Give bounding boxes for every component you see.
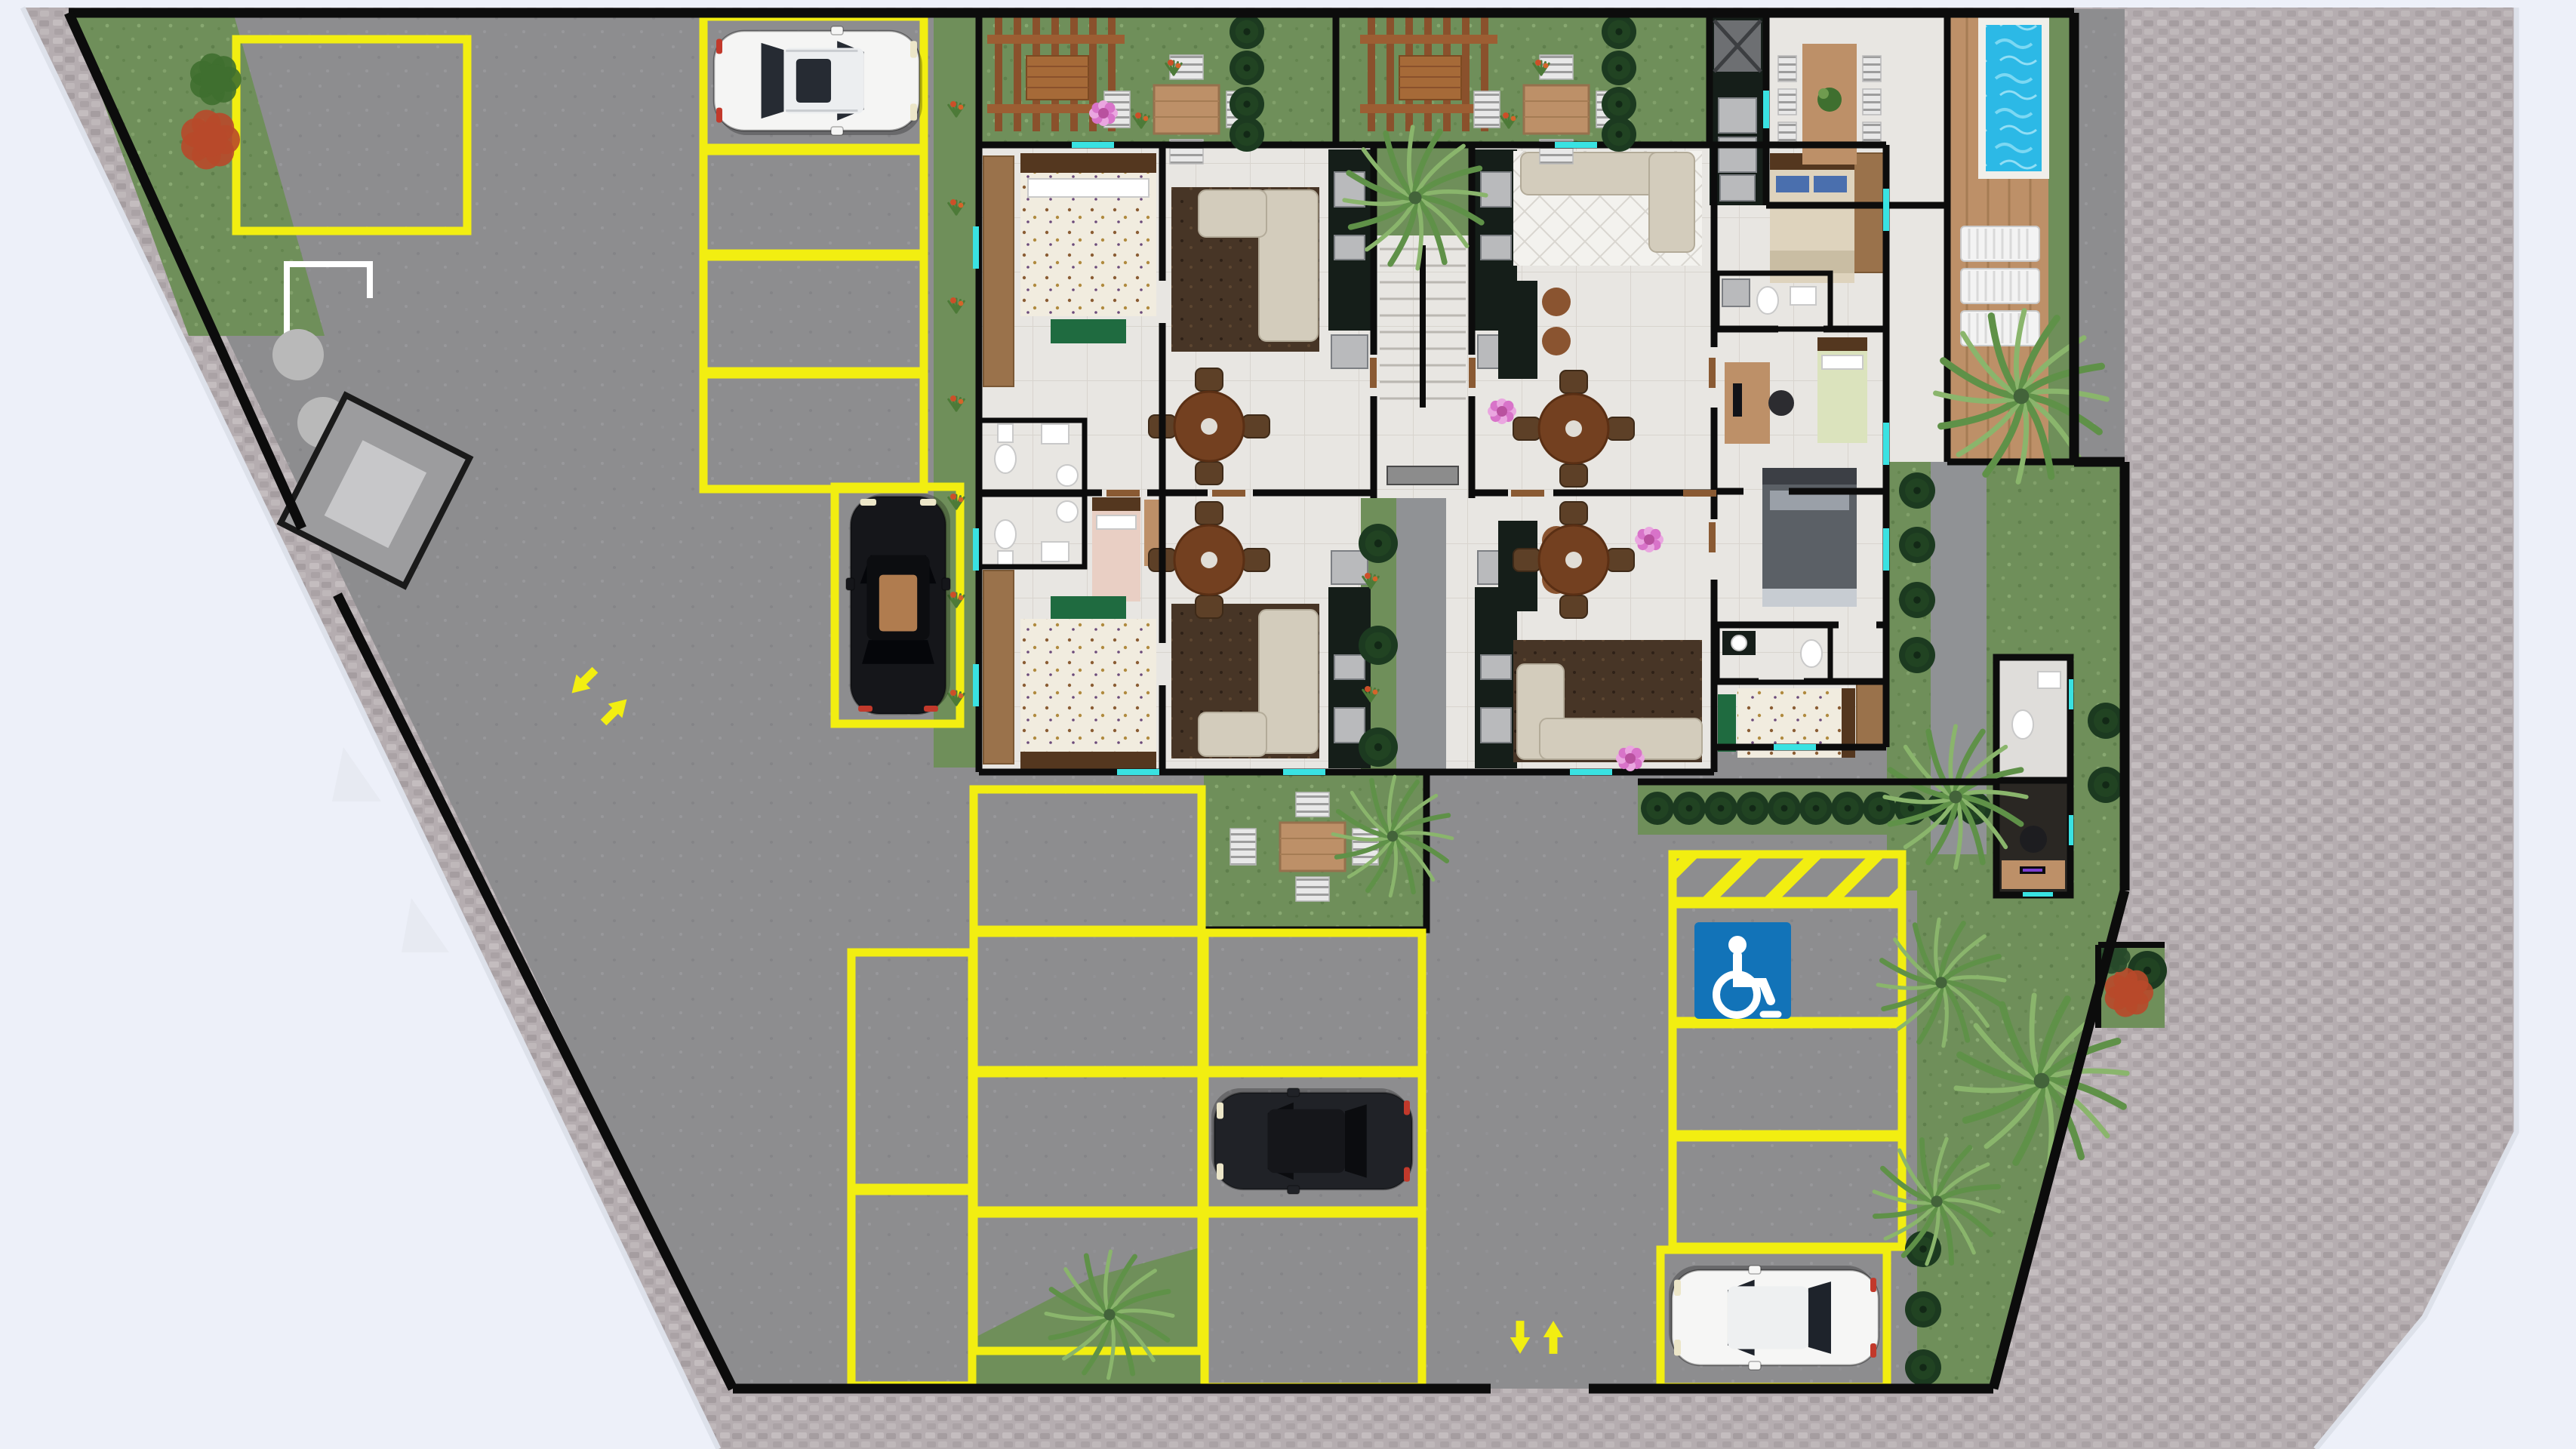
outdoor-kitchen-counter — [1710, 13, 1766, 205]
single-bed-pillow — [1822, 355, 1863, 369]
bed-headboard — [1020, 153, 1156, 173]
sofa-seat — [1199, 190, 1266, 237]
window-accent — [1555, 142, 1597, 148]
window-accent — [1283, 769, 1325, 775]
hedge-bush — [1230, 87, 1264, 122]
hedge-bush — [1359, 524, 1398, 563]
sofa-chaise — [1649, 152, 1694, 252]
window-accent — [1883, 189, 1889, 231]
toilet-tank — [998, 424, 1013, 442]
bed-end-bench — [1051, 319, 1126, 343]
window-accent — [1570, 769, 1612, 775]
pool-water-texture — [1986, 25, 2042, 171]
annex-chair — [2020, 826, 2047, 853]
bed-quilt-pattern — [1020, 619, 1156, 752]
bbq-drawer — [1719, 98, 1756, 133]
east-hall-floor — [1886, 205, 1947, 462]
pool-lounger — [1961, 311, 2039, 346]
hedge-bush — [1899, 637, 1935, 673]
no-parking-hatch-zone — [1673, 854, 1902, 901]
window-accent — [973, 226, 979, 269]
hedge-bush — [1768, 792, 1801, 825]
hedge-bush — [1641, 792, 1674, 825]
single-bed-pillow — [1097, 515, 1136, 529]
hedge-bush — [1905, 1291, 1941, 1327]
door-leaf — [1469, 358, 1476, 388]
bar-stool — [1542, 288, 1571, 316]
hedge-bush — [1230, 117, 1264, 152]
utility-drum — [272, 329, 324, 380]
sofa-seat — [1199, 712, 1266, 756]
window-accent — [2069, 815, 2073, 845]
pool-lounger — [1961, 269, 2039, 303]
window-accent — [2023, 892, 2053, 897]
bar-stool — [1542, 327, 1571, 355]
hedge-bush — [1799, 792, 1833, 825]
hedge-bush — [1230, 14, 1264, 49]
car-white-suv — [714, 26, 922, 135]
bed-throw — [1770, 251, 1854, 273]
washing-machine — [1722, 279, 1750, 306]
bed-pillow-blue — [1814, 176, 1847, 192]
bed-end-bench — [1051, 596, 1126, 619]
window-accent — [973, 528, 979, 571]
sink — [1042, 542, 1069, 561]
dining-chair — [1778, 56, 1796, 82]
corridor-path — [1396, 498, 1446, 772]
vanity-sink — [1731, 635, 1747, 651]
wardrobe — [983, 571, 1014, 764]
pool-lounger — [1961, 226, 2039, 261]
sink — [2038, 672, 2060, 688]
hedge-bush — [1704, 792, 1737, 825]
wardrobe — [1853, 153, 1885, 272]
wheelchair-sign-panel — [1694, 922, 1791, 1019]
fridge — [1331, 335, 1368, 368]
stove — [1481, 708, 1511, 743]
toilet — [995, 520, 1016, 549]
hedge-bush — [1899, 472, 1935, 509]
hatched-zone — [1673, 854, 1902, 901]
fridge — [1331, 551, 1368, 584]
hedge-bush — [1602, 117, 1636, 152]
dining-chair — [1778, 89, 1796, 115]
dining-chair — [1863, 56, 1881, 82]
kitchen-sink — [1481, 655, 1511, 679]
stove — [1481, 172, 1511, 207]
stove — [1334, 708, 1365, 743]
bed-end-bench — [1718, 694, 1736, 752]
kitchen-sink — [1334, 235, 1365, 260]
door-leaf — [1709, 358, 1716, 388]
hedge-bush — [1359, 728, 1398, 767]
toilet — [2012, 710, 2033, 739]
desk-monitor — [1733, 383, 1742, 417]
hedge-bush — [1673, 792, 1706, 825]
shower-drain — [1057, 465, 1078, 486]
annex-desk — [2002, 860, 2065, 889]
door-leaf — [1683, 490, 1716, 497]
pink-flower-cluster — [1635, 527, 1663, 552]
window-accent — [1883, 423, 1889, 465]
wardrobe — [1857, 683, 1884, 746]
bed-folded-blanket — [1762, 589, 1857, 607]
door-leaf — [1511, 490, 1544, 497]
door-leaf — [1709, 522, 1716, 552]
stair-rail — [1420, 245, 1426, 408]
car-black-sedan — [846, 494, 950, 714]
hedge-bush — [2088, 703, 2124, 739]
window-accent — [973, 664, 979, 706]
hedge-bush — [1230, 51, 1264, 85]
door-leaf — [1212, 490, 1245, 497]
car-dark-hatchback — [1211, 1088, 1412, 1194]
hedge-bush — [1602, 87, 1636, 122]
desk — [1725, 362, 1770, 444]
pink-flower-cluster — [1488, 398, 1516, 424]
sofa-chaise — [1259, 610, 1318, 753]
site-plan-rendering — [0, 0, 2576, 1449]
door-leaf — [1370, 358, 1377, 388]
window-accent — [1883, 528, 1889, 571]
window-accent — [1774, 744, 1816, 750]
bed-pillow-blue — [1776, 176, 1809, 192]
pool-loungers — [1961, 226, 2039, 346]
kitchen-sink — [1334, 655, 1365, 679]
single-bed-headboard — [1092, 497, 1140, 511]
accessible-parking-sign — [1694, 922, 1791, 1019]
window-accent — [2069, 679, 2073, 709]
car-white-compact — [1669, 1266, 1879, 1370]
bed-pillows — [1028, 179, 1149, 197]
pink-flower-cluster — [1089, 100, 1118, 126]
window-accent — [1072, 142, 1114, 148]
hedge-bush — [1899, 527, 1935, 563]
hedge-bush — [1905, 1349, 1941, 1386]
shower-drain — [1057, 501, 1078, 522]
hedge-bush — [1899, 582, 1935, 618]
dining-chair — [1863, 89, 1881, 115]
wardrobe — [983, 156, 1014, 386]
toilet — [1801, 640, 1822, 667]
hedge-bush — [2088, 767, 2124, 803]
kitchen-sink — [1481, 235, 1511, 260]
double-bed-gray-headboard — [1762, 468, 1857, 485]
bed-headboard — [1020, 752, 1156, 770]
breakfast-bar — [1498, 281, 1537, 379]
hedge-bush — [1831, 792, 1864, 825]
single-bed-headboard — [1817, 337, 1867, 351]
window-accent — [1117, 769, 1159, 775]
table-plant — [1818, 88, 1829, 99]
toilet — [1757, 287, 1778, 314]
sink — [1790, 287, 1816, 305]
hedge-bush — [1359, 626, 1398, 665]
sink — [1042, 424, 1069, 444]
window-accent — [1763, 91, 1769, 128]
pink-flower-cluster — [1616, 746, 1645, 771]
sofa-chaise — [1259, 190, 1318, 341]
hedge-bush — [1602, 51, 1636, 85]
toilet — [995, 445, 1016, 473]
door-leaf — [1106, 490, 1140, 497]
annex-monitor-screen — [2023, 869, 2042, 872]
swimming-pool — [1982, 21, 2045, 175]
hedge-bush — [1602, 14, 1636, 49]
entry-mat — [1387, 466, 1458, 485]
bbq-sink — [1720, 175, 1755, 201]
desk-chair — [1768, 390, 1794, 416]
hedge-bush — [1736, 792, 1769, 825]
